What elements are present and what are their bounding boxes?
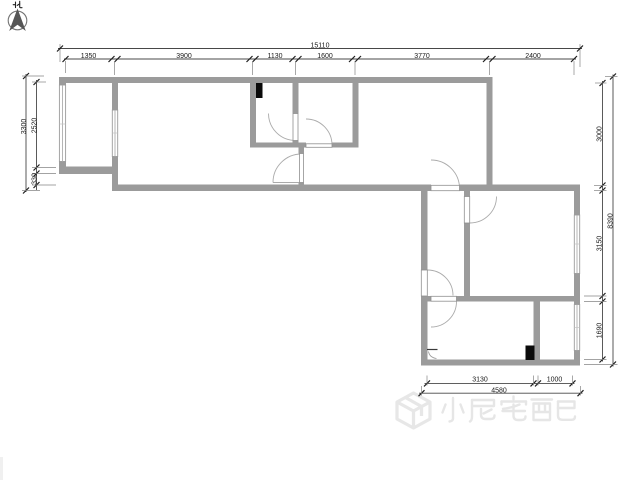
svg-text:3000: 3000 [596,126,603,142]
svg-text:15110: 15110 [311,43,330,50]
svg-text:1600: 1600 [317,53,333,60]
svg-text:2520: 2520 [31,118,38,134]
svg-text:3150: 3150 [596,236,603,252]
svg-text:3900: 3900 [176,53,192,60]
svg-text:3300: 3300 [21,119,28,135]
svg-text:1000: 1000 [547,376,563,383]
svg-text:1130: 1130 [267,53,282,60]
svg-text:2400: 2400 [525,53,541,60]
svg-text:1350: 1350 [81,53,97,60]
svg-text:3130: 3130 [472,376,488,383]
svg-text:4580: 4580 [491,387,507,394]
svg-text:1690: 1690 [596,323,603,339]
svg-text:330: 330 [31,173,38,185]
svg-text:3770: 3770 [414,53,430,60]
svg-text:8390: 8390 [608,213,615,229]
